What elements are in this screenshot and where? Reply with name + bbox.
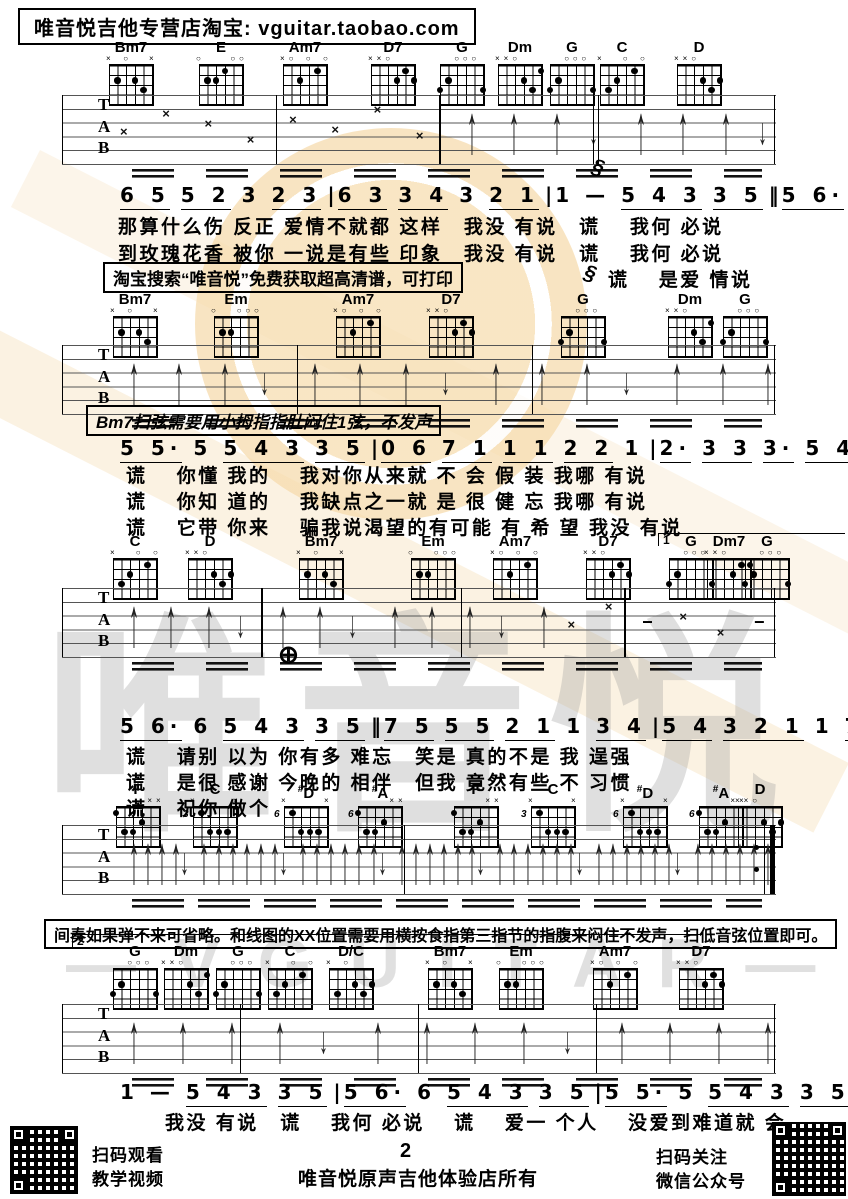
open-string-mark: ○ <box>737 307 742 315</box>
muted-string-mark: × <box>683 55 688 63</box>
strum-up-arrow-icon: ↑ <box>720 94 731 164</box>
open-string-mark: ○ <box>592 307 597 315</box>
jianpu-segment: 1 <box>815 714 834 740</box>
finger-dot <box>460 320 466 326</box>
open-string-mark: ○ <box>196 55 201 63</box>
finger-dot <box>211 571 217 577</box>
muted-string-mark: × <box>620 797 625 805</box>
lyric-line: 谎 是爱 情说 <box>608 265 753 292</box>
strum-up-arrow-icon: ↑ <box>523 824 534 894</box>
lyric-line: 谎 你懂 我的 我对你从来就 不 会 假 装 我哪 有说 <box>126 461 648 488</box>
strum-up-arrow-icon: ↑ <box>636 824 647 894</box>
jianpu-segment: 5 5 <box>445 714 495 741</box>
open-string-mark: ○ <box>573 55 578 63</box>
beam-strip <box>132 662 762 671</box>
measure-bar: ‖ <box>371 714 381 740</box>
strum-up-arrow-icon: ↑ <box>491 344 502 414</box>
strum-up-arrow-icon: ↑ <box>678 94 689 164</box>
jianpu-segment: 5 4 3 <box>708 1080 789 1107</box>
finger-dot <box>256 991 262 997</box>
strum-up-arrow-icon: ↑ <box>467 94 478 164</box>
jianpu-segment: 5 5· <box>605 1080 667 1107</box>
open-string-mark: ○ <box>463 55 468 63</box>
tab-staff-1: ××××××××↑↑↑↓↑↑↑↓TAB <box>62 95 776 165</box>
open-string-mark: ○ <box>343 959 348 967</box>
open-string-mark: ○ <box>682 307 687 315</box>
open-string-mark: ○ <box>127 307 132 315</box>
open-string-mark: ○ <box>247 959 252 967</box>
qr-caption-line: 微信公众号 <box>656 1170 746 1194</box>
muted-string-mark: × <box>149 55 154 63</box>
open-string-mark: ○ <box>746 307 751 315</box>
strum-up-arrow-icon: ↑ <box>636 94 647 164</box>
qr-caption-left: 扫码观看 教学视频 <box>92 1144 164 1192</box>
jianpu-segment: 5 4 3 <box>447 1080 528 1107</box>
strum-up-arrow-icon: ↑ <box>470 1003 481 1073</box>
jianpu-segment: 5 4 3 <box>805 436 848 463</box>
jianpu-segment: 3 2 1 <box>723 714 804 741</box>
strum-up-arrow-icon: ↑ <box>326 824 337 894</box>
finger-dot <box>273 991 279 997</box>
strum-up-arrow-icon: ↑ <box>166 587 177 657</box>
chord-name: G <box>438 40 486 56</box>
jianpu-segment: 1 <box>555 183 574 209</box>
finger-dot <box>451 810 457 816</box>
strum-down-arrow-icon: ↓ <box>319 1022 328 1059</box>
finger-dot <box>778 819 784 825</box>
barline <box>774 95 775 164</box>
finger-dot <box>153 991 159 997</box>
repeat-barline <box>770 825 775 894</box>
open-string-mark: ○ <box>539 959 544 967</box>
qr-finder-icon <box>829 1122 846 1139</box>
open-string-mark: ○ <box>291 959 296 967</box>
chord-diagram-G: G○○○ <box>214 944 262 1010</box>
strum-up-arrow-icon: ↑ <box>315 587 326 657</box>
muted-string-mark: × <box>368 55 373 63</box>
muted-string-mark: × <box>110 307 115 315</box>
tab-letter: T <box>98 1004 109 1024</box>
finger-dot <box>614 77 620 83</box>
jianpu-segment: 3· <box>763 436 795 463</box>
lyric-line: 谎 是很 感谢 今晚的 相伴 但我 竟然有些 不 习惯 <box>126 768 632 795</box>
finger-dot <box>127 571 133 577</box>
open-string-mark: ○ <box>408 549 413 557</box>
strum-up-arrow-icon: ↑ <box>509 824 520 894</box>
finger-dot <box>411 77 417 83</box>
finger-dot <box>631 68 637 74</box>
open-string-mark: ○ <box>237 307 242 315</box>
strum-up-arrow-icon: ↑ <box>297 824 308 894</box>
jianpu-line-3: 5 6·65 4 33 5‖7 55 52 113 4|5 43 2 117 1… <box>120 714 848 741</box>
finger-dot <box>607 981 613 987</box>
jianpu-segment: 3 4 <box>596 714 646 741</box>
finger-dot <box>566 329 572 335</box>
mute-x-mark: × <box>289 113 297 126</box>
open-string-mark: ○ <box>754 307 759 315</box>
finger-dot <box>710 972 716 978</box>
strum-up-arrow-icon: ↑ <box>714 1003 725 1073</box>
jianpu-segment: 5 <box>678 1080 697 1106</box>
lyric-line: 那算什么伤 反正 爱情不就都 这样 我没 有说 谎 我何 必说 <box>118 212 724 239</box>
finger-dot <box>691 329 697 335</box>
jianpu-segment: 7 5 <box>384 714 434 741</box>
jianpu-segment: — <box>585 183 610 209</box>
strum-down-arrow-icon: ↓ <box>236 606 245 643</box>
jianpu-segment: 2 1 <box>505 714 555 741</box>
barline <box>596 1004 597 1073</box>
open-string-mark: ○ <box>442 959 447 967</box>
barline <box>404 825 405 894</box>
muted-string-mark: × <box>583 549 588 557</box>
muted-string-mark: × <box>265 959 270 967</box>
open-string-mark: ○ <box>442 549 447 557</box>
mute-x-mark: × <box>374 103 382 116</box>
muted-string-mark: × <box>153 307 158 315</box>
chord-diagram-D-C: D/C×○ <box>327 944 375 1010</box>
qr-caption-line: 扫码关注 <box>656 1146 746 1170</box>
strum-down-arrow-icon: ↓ <box>441 363 450 400</box>
strum-up-arrow-icon: ↑ <box>593 824 604 894</box>
finger-dot <box>536 810 542 816</box>
open-string-mark: ○ <box>752 797 757 805</box>
finger-dot <box>204 77 210 83</box>
jianpu-segment: 5 6· <box>344 1080 406 1107</box>
muted-string-mark: × <box>185 549 190 557</box>
jianpu-segment: 3 5 <box>713 183 763 210</box>
muted-string-mark: × <box>592 549 597 557</box>
chord-name: Bm7 <box>107 40 155 56</box>
strum-up-arrow-icon: ↑ <box>650 824 661 894</box>
tab-staff-4: ↑↑↑↑↓↑↑↑↑↑↑↓↑↑↑↑↑↑↓↑↑↑↑↑↑↓↑↑↑↑↑↑↓↑↑↑↑↑↑↓… <box>62 825 776 895</box>
strum-up-arrow-icon: ↑ <box>748 824 759 894</box>
jianpu-segment: 3 5 <box>315 436 365 463</box>
mute-x-mark: × <box>568 618 576 631</box>
strum-up-arrow-icon: ↑ <box>495 824 506 894</box>
open-string-mark: ○ <box>308 959 313 967</box>
open-string-mark: ○ <box>584 307 589 315</box>
strum-up-arrow-icon: ↑ <box>424 824 435 894</box>
footer-copyright: 唯音悦原声吉他体验店所有 <box>298 1164 538 1191</box>
jianpu-segment: 3 3 <box>702 436 752 463</box>
chord-name: G <box>721 292 769 308</box>
strum-up-arrow-icon: ↑ <box>672 344 683 414</box>
jianpu-segment: 3 5 <box>539 1080 589 1107</box>
strum-down-arrow-icon: ↓ <box>181 843 190 880</box>
muted-string-mark: × <box>426 307 431 315</box>
finger-dot <box>113 810 119 816</box>
open-string-mark: ○ <box>691 55 696 63</box>
qr-finder-icon <box>61 1126 78 1143</box>
jianpu-segment: 5 <box>193 436 212 462</box>
muted-string-mark: × <box>194 549 199 557</box>
open-string-mark: ○ <box>564 55 569 63</box>
muted-string-mark: × <box>326 959 331 967</box>
muted-string-mark: × <box>389 797 394 805</box>
finger-dot <box>445 77 451 83</box>
finger-dot <box>529 87 535 93</box>
strum-down-arrow-icon: ↓ <box>279 843 288 880</box>
barline <box>532 345 533 414</box>
open-string-mark: ○ <box>693 959 698 967</box>
muted-string-mark: × <box>663 797 668 805</box>
jianpu-segment: 1 <box>120 1080 139 1106</box>
finger-dot <box>110 991 116 997</box>
muted-string-mark: × <box>324 797 329 805</box>
tab-staff-3: ↑↑↑↓↑↑↓↑↑↑↓↑××−××−TAB <box>62 588 776 658</box>
jianpu-segment: 2 3 <box>272 183 322 210</box>
lyric-line: 谎 祝你 做个 <box>126 794 271 821</box>
finger-dot <box>700 77 706 83</box>
finger-dot <box>330 581 336 587</box>
open-string-mark: ○ <box>443 307 448 315</box>
finger-dot <box>228 329 234 335</box>
finger-dot <box>555 77 561 83</box>
finger-dot <box>187 981 193 987</box>
open-string-mark: ○ <box>342 307 347 315</box>
measure-bar: | <box>333 1080 340 1106</box>
strum-up-arrow-icon: ↑ <box>372 1003 383 1073</box>
jianpu-segment: 3 5 <box>800 1080 848 1107</box>
muted-string-mark: × <box>676 959 681 967</box>
barline <box>774 1004 775 1073</box>
open-string-mark: ○ <box>323 55 328 63</box>
muted-string-mark: × <box>674 307 679 315</box>
barline <box>439 95 440 164</box>
jianpu-segment: 5 4 3 <box>223 714 304 741</box>
open-string-mark: ○ <box>136 549 141 557</box>
strum-down-arrow-icon: ↓ <box>260 363 269 400</box>
finger-dot <box>605 87 611 93</box>
jianpu-segment: 1 1 <box>503 436 553 463</box>
open-string-mark: ○ <box>451 549 456 557</box>
qr-finder-icon <box>772 1122 789 1139</box>
tab-letter: A <box>98 610 110 630</box>
finger-dot <box>322 571 328 577</box>
finger-dot <box>708 87 714 93</box>
jianpu-segment: 6 <box>417 1080 436 1106</box>
open-string-mark: ○ <box>153 549 158 557</box>
mute-x-mark: × <box>605 600 613 613</box>
muted-string-mark: × <box>590 959 595 967</box>
rest-dash: − <box>642 612 653 633</box>
finger-dot <box>136 329 142 335</box>
open-string-mark: ○ <box>623 55 628 63</box>
open-string-mark: ○ <box>683 549 688 557</box>
strum-up-arrow-icon: ↑ <box>128 587 139 657</box>
volta-bracket-1: 1 <box>658 533 845 546</box>
barline <box>461 588 462 657</box>
finger-dot <box>367 320 373 326</box>
beam-strip <box>132 169 762 178</box>
muted-string-mark: × <box>665 307 670 315</box>
jianpu-segment: 0 6 <box>381 436 431 463</box>
strum-up-arrow-icon: ↑ <box>174 344 185 414</box>
open-string-mark: ○ <box>313 549 318 557</box>
open-string-mark: ○ <box>230 55 235 63</box>
jianpu-segment: 2 1 <box>489 183 539 210</box>
barline <box>297 345 298 414</box>
open-string-mark: ○ <box>385 55 390 63</box>
jianpu-segment: 5 2 <box>181 183 231 210</box>
finger-dot <box>696 810 702 816</box>
barline <box>62 345 63 414</box>
qr-finder-icon <box>772 1179 789 1196</box>
finger-dot <box>451 981 457 987</box>
strum-up-arrow-icon: ↑ <box>219 344 230 414</box>
strum-up-arrow-icon: ↑ <box>509 94 520 164</box>
barline <box>62 1004 63 1073</box>
jianpu-segment: 2· <box>660 436 692 463</box>
muted-string-mark: × <box>296 549 301 557</box>
jianpu-segment: 7 1 <box>845 714 848 741</box>
muted-string-mark: × <box>280 55 285 63</box>
barline <box>276 95 277 164</box>
finger-dot <box>626 571 632 577</box>
muted-string-mark: × <box>106 55 111 63</box>
chord-diagram-Am7: Am7×○○○ <box>591 944 639 1010</box>
strum-down-arrow-icon: ↓ <box>575 843 584 880</box>
lyric-line: 谎 它带 你来 骗我说渴望的有可能 有 希 望 我没 有说 <box>126 513 683 540</box>
open-string-mark: ○ <box>496 959 501 967</box>
strum-up-arrow-icon: ↑ <box>581 344 592 414</box>
barline <box>418 1004 419 1073</box>
strum-down-arrow-icon: ↓ <box>674 843 683 880</box>
strum-up-arrow-icon: ↑ <box>142 824 153 894</box>
jianpu-segment: 6 <box>193 714 212 740</box>
repeat-barline <box>764 825 765 894</box>
open-string-mark: ○ <box>616 959 621 967</box>
finger-dot <box>719 981 725 987</box>
measure-bar: | <box>652 714 659 740</box>
mute-x-mark: × <box>679 610 687 623</box>
jianpu-segment: 3 5 <box>278 1080 328 1107</box>
open-string-mark: ○ <box>533 549 538 557</box>
tab-letter: T <box>98 825 109 845</box>
muted-string-mark: × <box>398 797 403 805</box>
finger-dot <box>213 991 219 997</box>
jianpu-line-1: 6 55 232 3|6 33 432 1|1—5 4 33 5‖5 6·65 … <box>120 183 848 210</box>
finger-dot <box>459 991 465 997</box>
measure-bar: | <box>649 436 656 462</box>
finger-dot <box>334 991 340 997</box>
qr-finder-icon <box>10 1126 27 1143</box>
muted-string-mark: × <box>495 55 500 63</box>
strum-up-arrow-icon: ↑ <box>706 824 717 894</box>
finger-dot <box>369 981 375 987</box>
strum-up-arrow-icon: ↑ <box>464 587 475 657</box>
strum-up-arrow-icon: ↑ <box>227 824 238 894</box>
jianpu-segment: 5 6· <box>782 183 844 210</box>
strum-up-arrow-icon: ↑ <box>199 824 210 894</box>
finger-dot <box>617 562 623 568</box>
finger-dot <box>469 329 475 335</box>
tip-box-bm7-technique: Bm7扫弦需要用小拇指指肚闷住1弦，不发声 <box>86 405 441 436</box>
finger-dot <box>402 68 408 74</box>
finger-dot <box>433 981 439 987</box>
finger-dot <box>221 981 227 987</box>
finger-dot <box>297 77 303 83</box>
open-string-mark: ○ <box>692 549 697 557</box>
strum-up-arrow-icon: ↑ <box>421 1003 432 1073</box>
finger-dot <box>728 329 734 335</box>
finger-dot <box>195 991 201 997</box>
finger-dot <box>304 571 310 577</box>
jianpu-segment: — <box>150 1080 175 1106</box>
muted-string-mark: × <box>161 959 166 967</box>
measure-bar: | <box>371 436 378 462</box>
strum-up-arrow-icon: ↑ <box>128 824 139 894</box>
finger-dot <box>717 77 723 83</box>
mute-x-mark: × <box>331 123 339 136</box>
finger-dot <box>521 77 527 83</box>
finger-dot <box>507 571 513 577</box>
jianpu-segment: 7 1 <box>442 436 492 463</box>
chord-name: C <box>598 40 646 56</box>
measure-bar: | <box>595 1080 602 1106</box>
mute-x-mark: × <box>416 129 424 142</box>
strum-up-arrow-icon: ↑ <box>203 587 214 657</box>
chord-name: G <box>548 40 596 56</box>
open-string-mark: ○ <box>575 307 580 315</box>
lyric-line: 我没 有说 谎 我何 必说 谎 爱一 个人 没爱到难道就 会 <box>165 1108 786 1135</box>
strum-up-arrow-icon: ↑ <box>355 344 366 414</box>
qr-finder-icon <box>10 1177 27 1194</box>
lyric-line: 谎 请别 以为 你有多 难忘 笑是 真的不是 我 逞强 <box>126 742 632 769</box>
finger-dot <box>219 581 225 587</box>
jianpu-segment: 3 5 <box>315 714 365 741</box>
open-string-mark: ○ <box>230 959 235 967</box>
muted-string-mark: × <box>485 797 490 805</box>
measure-bar: | <box>327 183 334 209</box>
tab-letter: B <box>98 631 109 651</box>
muted-string-mark: × <box>494 797 499 805</box>
tab-letter: A <box>98 847 110 867</box>
strum-up-arrow-icon: ↑ <box>275 1003 286 1073</box>
strum-up-arrow-icon: ↑ <box>536 344 547 414</box>
strum-up-arrow-icon: ↑ <box>226 1003 237 1073</box>
strum-down-arrow-icon: ↓ <box>497 606 506 643</box>
barline <box>240 1004 241 1073</box>
jianpu-segment: 3 4 <box>398 183 448 210</box>
jianpu-segment: 6 5 <box>120 183 170 210</box>
muted-string-mark: × <box>425 959 430 967</box>
strum-up-arrow-icon: ↑ <box>255 824 266 894</box>
open-string-mark: ○ <box>581 55 586 63</box>
jianpu-segment: 5 4 3 <box>621 183 702 210</box>
finger-dot <box>674 571 680 577</box>
open-string-mark: ○ <box>454 55 459 63</box>
muted-string-mark: × <box>597 55 602 63</box>
muted-string-mark: × <box>744 797 749 805</box>
finger-dot <box>513 981 519 987</box>
strum-up-arrow-icon: ↑ <box>241 824 252 894</box>
mute-x-mark: × <box>162 107 170 120</box>
strum-up-arrow-icon: ↑ <box>312 824 323 894</box>
strum-up-arrow-icon: ↑ <box>400 344 411 414</box>
tab-letter: A <box>98 367 110 387</box>
tab-letter: T <box>98 345 109 365</box>
strum-up-arrow-icon: ↑ <box>539 587 550 657</box>
open-string-mark: ○ <box>144 959 149 967</box>
finger-dot <box>289 810 295 816</box>
finger-dot <box>785 581 791 587</box>
finger-dot <box>314 68 320 74</box>
open-string-mark: ○ <box>512 55 517 63</box>
volta-number: 1 <box>663 533 670 547</box>
open-string-mark: ○ <box>254 307 259 315</box>
chord-name: Bm7 <box>111 292 159 308</box>
